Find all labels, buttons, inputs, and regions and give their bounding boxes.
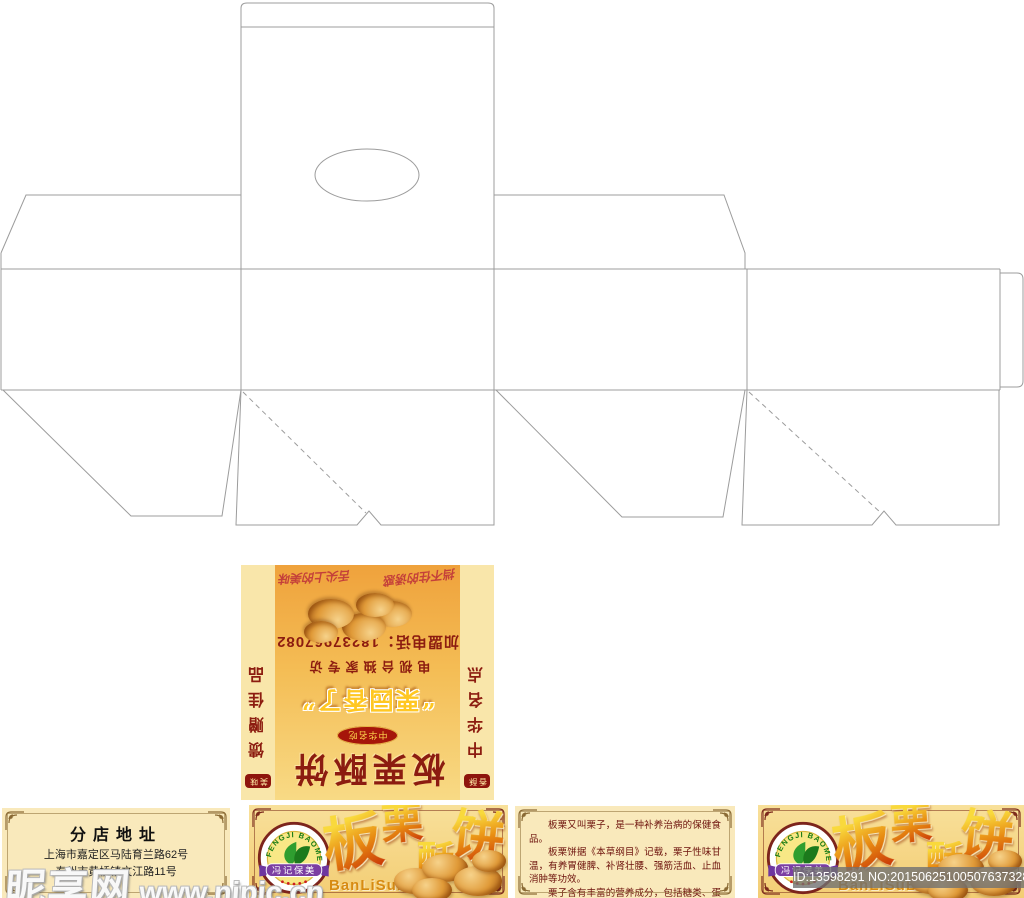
bottom-flap-d-outline	[742, 390, 999, 525]
ornate-corner-icon	[518, 809, 538, 829]
mini-seal-badge: 美味	[245, 774, 271, 788]
side-column-left: 香酥 中华名点	[459, 565, 494, 800]
glue-tab-outline	[1000, 273, 1023, 387]
ornate-corner-icon	[712, 809, 732, 829]
fold-crease-dashed	[749, 392, 881, 513]
info-paragraph: 板栗又叫栗子，是一种补养治病的保健食品。	[529, 819, 721, 846]
handle-hole-cutout	[315, 149, 419, 201]
back-panel-center: 板栗酥饼 中华名吃 “栗园香了” 电视台独家专访 加盟电话：1823796708…	[275, 565, 460, 800]
side-column-right: 美味 馈赠佳品	[241, 565, 276, 800]
pastry-photo	[388, 848, 508, 898]
slogan-right: 舌尖上的美味	[279, 567, 352, 588]
packaging-design-sheet: 香酥 中华名点 美味 馈赠佳品 板栗酥饼 中华名吃 “栗园香了” 电视台独家专访…	[0, 0, 1024, 898]
product-name-calligraphy: 板栗酥饼	[275, 747, 460, 796]
fold-crease-dashed	[243, 392, 366, 513]
pastry-photo	[296, 591, 416, 645]
slogan-left: 挡不住的诱惑	[383, 565, 456, 589]
top-flap-left-outline	[1, 195, 241, 253]
tv-interview-line: 电视台独家专访	[275, 658, 460, 677]
handle-panel-outline	[241, 3, 494, 269]
branch-address-heading: 分店地址	[2, 821, 230, 845]
info-paragraph: 板栗饼据《本草纲目》记载，栗子性味甘温，有养胃健脾、补肾壮腰、强筋活血、止血消肿…	[529, 846, 721, 887]
ornate-corner-icon	[518, 875, 538, 895]
chestnut-info-panel: 板栗又叫栗子，是一种补养治病的保健食品。 板栗饼据《本草纲目》记载，栗子性味甘温…	[515, 806, 735, 898]
nipic-watermark: 昵享网www.nipic.cn	[4, 856, 326, 898]
nipic-site-name: 昵享网	[4, 867, 133, 898]
nipic-site-url: www.nipic.cn	[138, 877, 324, 898]
chestnut-description-text: 板栗又叫栗子，是一种补养治病的保健食品。 板栗饼据《本草纲目》记载，栗子性味甘温…	[515, 806, 735, 898]
handwritten-slogans: 挡不住的诱惑 舌尖上的美味	[275, 569, 460, 586]
image-id-watermark: ID:13598291 NO:20150625100507637328	[793, 867, 1024, 888]
mini-seal-badge: 香酥	[464, 774, 490, 788]
ornate-corner-icon	[207, 811, 227, 831]
ornate-corner-icon	[5, 811, 25, 831]
vertical-slogan-right: 馈赠佳品	[246, 658, 270, 758]
box-dieline-drawing	[0, 0, 1024, 560]
back-panel-upside-down: 香酥 中华名点 美味 馈赠佳品 板栗酥饼 中华名吃 “栗园香了” 电视台独家专访…	[241, 565, 494, 800]
vertical-slogan-left: 中华名点	[465, 658, 489, 758]
ornate-corner-icon	[712, 875, 732, 895]
golden-quote-text: “栗园香了”	[275, 685, 460, 720]
bottom-flap-c-outline	[496, 390, 745, 517]
bottom-flap-b-outline	[236, 390, 494, 525]
bottom-flap-a-outline	[3, 390, 241, 516]
top-flap-right-outline	[494, 195, 745, 269]
red-oval-seal: 中华名吃	[338, 726, 398, 745]
info-paragraph: 栗子含有丰富的营养成分，包括糖类、蛋白质、脂肪、多种维生素和无机盐。栗子对高血压…	[529, 887, 721, 898]
